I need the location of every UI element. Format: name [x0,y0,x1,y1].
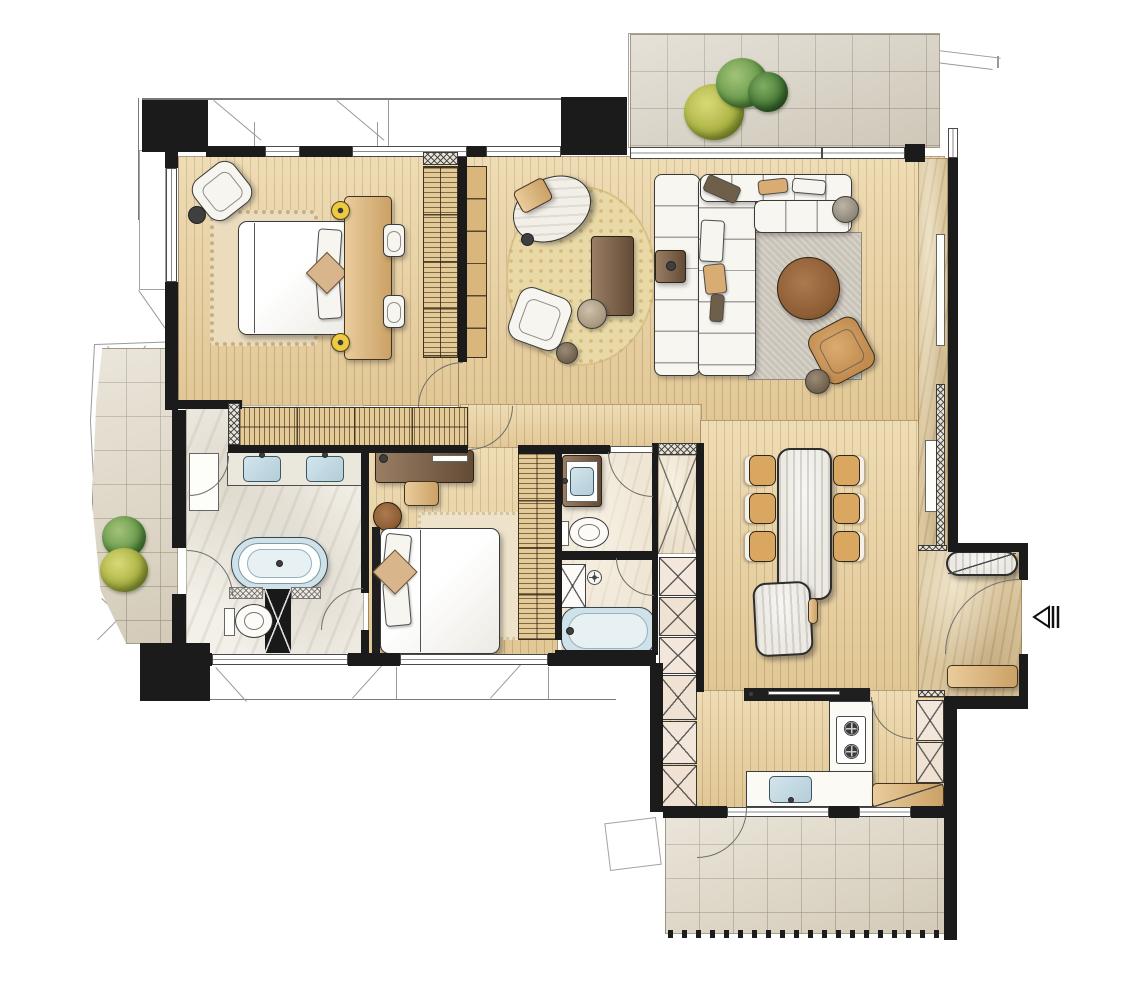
desk-lamp [379,454,388,463]
cushion [709,294,725,323]
wall-hatch [658,443,697,455]
dining-chair [833,455,860,486]
wall [165,150,178,168]
window [212,654,348,665]
media-panel [936,234,945,346]
wall-hatch [936,384,945,550]
wall [140,643,210,701]
wall [178,653,212,666]
pouf [577,299,607,329]
wall [518,445,610,454]
sink [243,456,281,482]
desk-paper [432,455,468,462]
wall-hatch [918,545,947,551]
wall [172,594,186,645]
wall [561,97,627,155]
side-table [188,206,206,224]
wall [829,806,859,818]
wall [944,696,1028,709]
dining-chair [833,531,860,562]
tall-cabinet [659,721,697,764]
desk-chair [383,295,405,328]
window [948,128,958,158]
wall [165,282,178,410]
faucet [788,797,794,803]
faucet [566,627,574,635]
sofa-arm-pouf [832,196,859,223]
left-balcony-rail [90,344,95,422]
ac-platform-outline [604,817,661,871]
shower-valve [587,570,602,585]
dining-chair [749,531,776,562]
shower-tray [559,564,586,608]
drain [276,560,283,567]
bench-tab [808,598,818,624]
bottom-bay-line [215,667,247,702]
window [859,807,911,817]
tall-cabinet [659,765,697,807]
dining-table [777,448,832,600]
counter-top-inlay [768,691,840,695]
roof-edge-end [997,56,999,68]
desk-stool [404,481,439,506]
exterior-outline-bottom [210,699,616,700]
cushion [791,178,826,196]
tall-cabinet [659,557,697,596]
cushion [757,177,788,195]
pouf [805,369,830,394]
bath-mat [291,587,321,599]
dining-chair [833,493,860,524]
toilet-tank [224,608,235,636]
toilet [569,517,609,548]
wall [905,144,925,162]
wall [458,156,467,362]
plant [100,548,148,592]
wall [911,806,945,818]
coffee-table [777,257,840,320]
tall-cabinet [659,597,697,636]
entry-bench-marble [946,551,1018,576]
window [486,146,561,157]
window [630,147,822,159]
bathtub-basin [568,613,648,649]
toilet [235,604,273,638]
duvet-fold-line [420,530,421,652]
sink [570,467,594,496]
wall [172,410,186,548]
cushion [702,263,727,295]
duvet-fold-line [254,223,255,333]
bench [752,581,814,658]
wall-hatch [423,152,458,165]
wall [1019,552,1028,580]
wall [228,445,468,453]
tall-cabinet [659,637,697,674]
headboard [372,527,380,654]
burner [844,744,859,759]
window [822,147,905,159]
bath-mat [229,587,263,599]
wall [300,146,352,157]
pouf [556,342,578,364]
plant [748,72,788,112]
wall [348,653,400,666]
wall [944,709,957,940]
table-dish [521,233,534,246]
window [265,146,300,157]
entry-bench-wood [947,665,1018,688]
wall [948,543,1028,552]
dining-chair [749,493,776,524]
dining-chair [749,455,776,486]
hall-closet [238,407,468,447]
wall [361,447,369,593]
floor-plan-page [0,0,1136,987]
entry-arrow-icon [1032,603,1062,631]
wall-hatch [228,403,240,445]
pantry-cabinet [916,700,944,741]
wall [948,158,958,550]
sofa-side-table-knob [666,261,676,271]
burner [844,721,859,736]
wall [650,663,663,812]
shower-stall [658,455,697,554]
wall [555,447,562,640]
left-bay-outline [139,150,166,290]
wardrobe-hanging [423,166,458,358]
cushion [699,219,725,262]
tall-cabinet [659,675,697,720]
wall [696,443,704,692]
wardrobe-hanging [518,452,556,640]
bedside-lamp [331,201,350,220]
bottom-bay-line [396,667,397,699]
bottom-bay-line [548,667,549,699]
bottom-bay-line [352,664,384,699]
faucet [562,478,568,484]
window [166,168,177,282]
wall-hatch [918,690,945,697]
wall [206,146,265,157]
bedside-lamp [331,333,350,352]
bottom-bay-line [490,664,522,699]
sink [306,456,344,482]
wall [548,653,653,666]
corner-cabinet [872,783,944,808]
pantry-cabinet [916,742,944,783]
terrace-railing [668,930,946,938]
bay-window-line [388,100,389,148]
window [400,654,548,665]
wall [142,100,208,152]
desk-chair [383,224,405,257]
floor-plan-canvas [0,0,1136,987]
headboard-console [344,196,392,360]
wall [467,146,486,157]
faucet [748,691,754,697]
